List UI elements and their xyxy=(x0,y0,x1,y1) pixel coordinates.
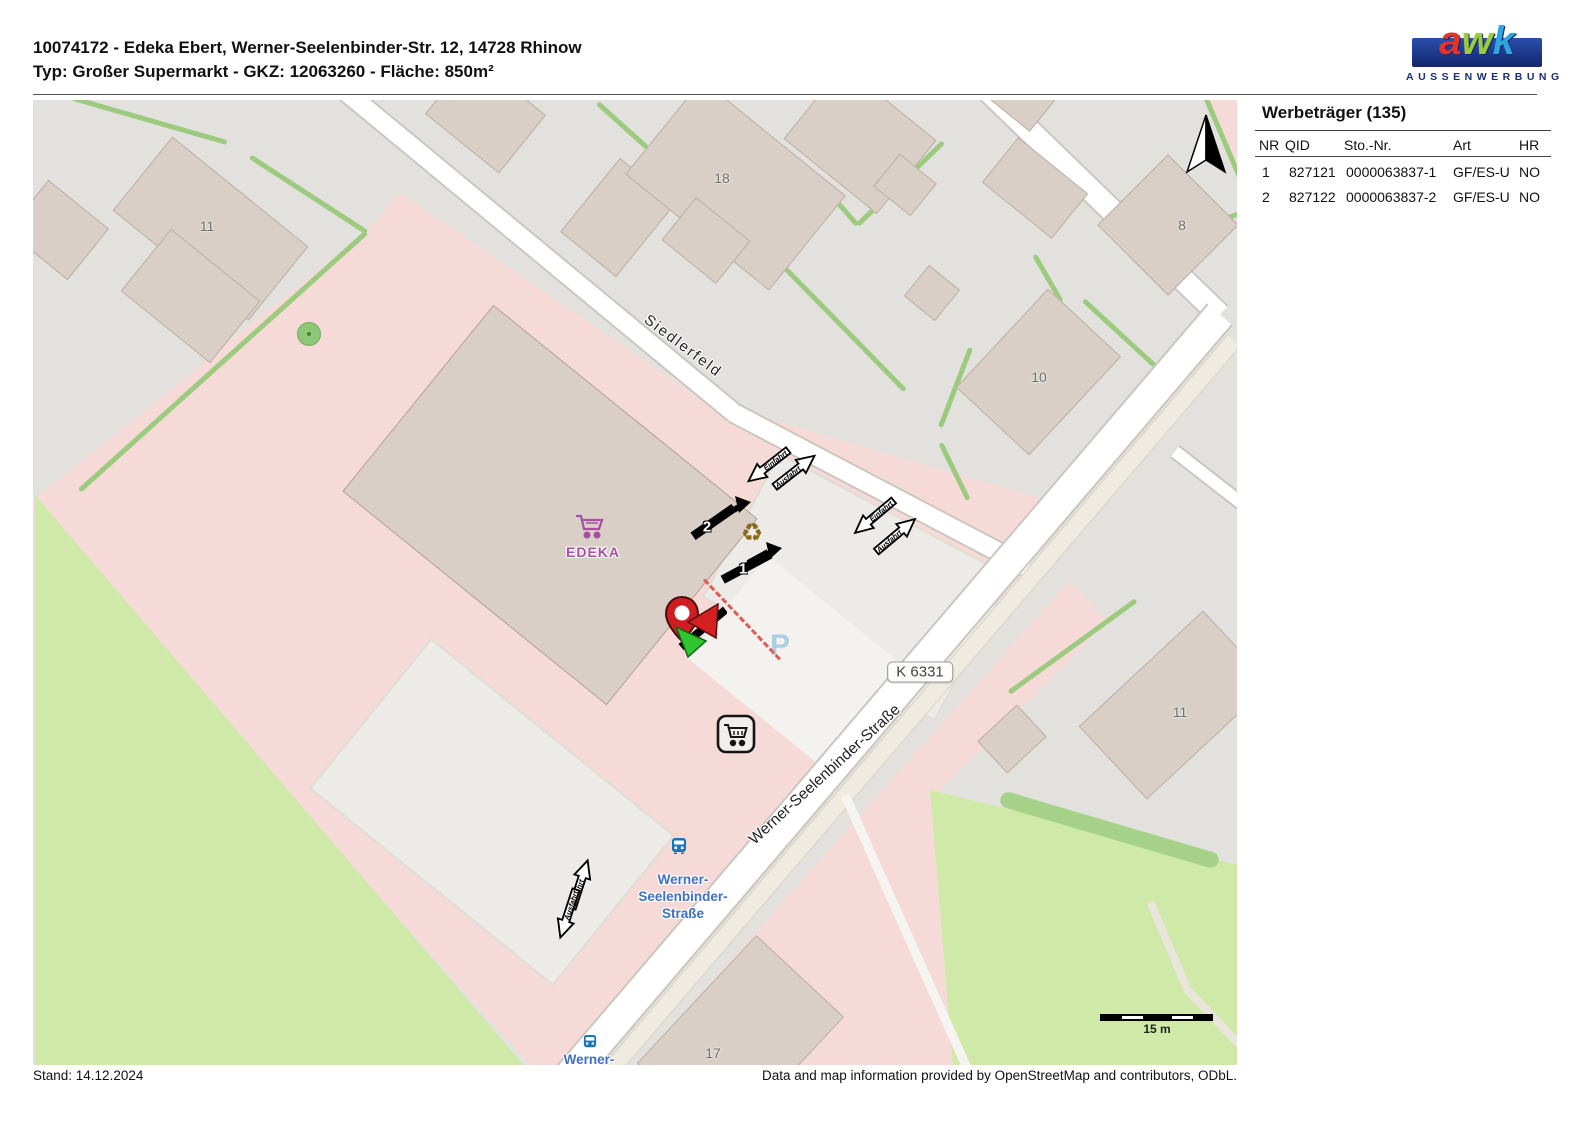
road-branch-east xyxy=(1170,445,1237,510)
panel-rule xyxy=(1255,156,1551,157)
cell-hr: NO xyxy=(1519,189,1540,205)
header-divider xyxy=(33,94,1537,95)
map-canvas: 11 18 10 8 11 17 Siedlerfeld Werner-Seel… xyxy=(33,100,1237,1065)
col-header-hr: HR xyxy=(1519,137,1539,153)
cell-art: GF/ES-U xyxy=(1453,189,1510,205)
svg-text:Ausfahrt: Ausfahrt xyxy=(562,889,580,922)
cell-art: GF/ES-U xyxy=(1453,164,1510,180)
building xyxy=(33,180,109,280)
awk-letter-a: a xyxy=(1439,19,1461,63)
hedge xyxy=(596,101,649,150)
col-header-sto: Sto.-Nr. xyxy=(1344,137,1391,153)
building xyxy=(904,265,960,321)
ad-marker-1-number: 1 xyxy=(739,561,747,578)
col-header-nr: NR xyxy=(1259,137,1279,153)
house-number: 18 xyxy=(714,170,730,186)
panel-rule xyxy=(1255,130,1551,131)
cell-sto: 0000063837-1 xyxy=(1346,164,1436,180)
page-title: 10074172 - Edeka Ebert, Werner-Seelenbin… xyxy=(33,38,582,58)
awk-logo: awk AUSSENWERBUNG xyxy=(1400,28,1550,88)
cell-nr: 2 xyxy=(1262,189,1270,205)
cell-hr: NO xyxy=(1519,164,1540,180)
location-pin-cluster xyxy=(661,595,727,665)
bus-stop-label: Werner- Seelenbinder- Straße xyxy=(638,871,727,922)
awk-letter-w: w xyxy=(1461,19,1492,63)
north-arrow-icon xyxy=(1183,110,1233,178)
house-number: 17 xyxy=(705,1045,721,1061)
house-number: 11 xyxy=(200,218,215,234)
col-header-qid: QID xyxy=(1285,137,1310,153)
page-subtitle: Typ: Großer Supermarkt - GKZ: 12063260 -… xyxy=(33,62,494,82)
awk-logo-subtitle: AUSSENWERBUNG xyxy=(1406,71,1548,83)
bus-stop-label-2: Werner- xyxy=(564,1052,615,1065)
supermarket-icon xyxy=(716,714,756,754)
bus-stop-icon xyxy=(583,1034,597,1049)
scale-label: 15 m xyxy=(1143,1022,1170,1036)
col-header-art: Art xyxy=(1453,137,1471,153)
cell-nr: 1 xyxy=(1262,164,1270,180)
road-ref-badge: K 6331 xyxy=(887,662,953,683)
building xyxy=(982,137,1088,239)
cell-qid: 827121 xyxy=(1289,164,1336,180)
ad-marker-2-number: 2 xyxy=(703,519,711,536)
footer-stand: Stand: 14.12.2024 xyxy=(33,1068,143,1083)
hedge xyxy=(72,100,227,145)
edeka-cart-icon xyxy=(573,512,609,542)
awk-logo-letters: awk xyxy=(1412,18,1542,64)
house-number: 8 xyxy=(1178,217,1186,233)
awk-letter-k: k xyxy=(1493,19,1515,63)
tree-icon xyxy=(297,322,321,346)
edeka-label: EDEKA xyxy=(566,544,620,560)
bus-stop-icon xyxy=(671,837,687,854)
footer-attribution: Data and map information provided by Ope… xyxy=(600,1068,1237,1083)
werbetraeger-panel: Werbeträger (135) NR QID Sto.-Nr. Art HR… xyxy=(1255,100,1551,220)
cell-sto: 0000063837-2 xyxy=(1346,189,1436,205)
house-number: 11 xyxy=(1173,704,1188,720)
house-number: 10 xyxy=(1031,369,1047,385)
ad-marker-1 xyxy=(714,539,790,601)
building-11-east xyxy=(1079,610,1237,799)
panel-title: Werbeträger (135) xyxy=(1262,103,1406,123)
cell-qid: 827122 xyxy=(1289,189,1336,205)
page: { "header": { "line1": "10074172 - Edeka… xyxy=(0,0,1587,1123)
scale-bar xyxy=(1100,1014,1213,1021)
